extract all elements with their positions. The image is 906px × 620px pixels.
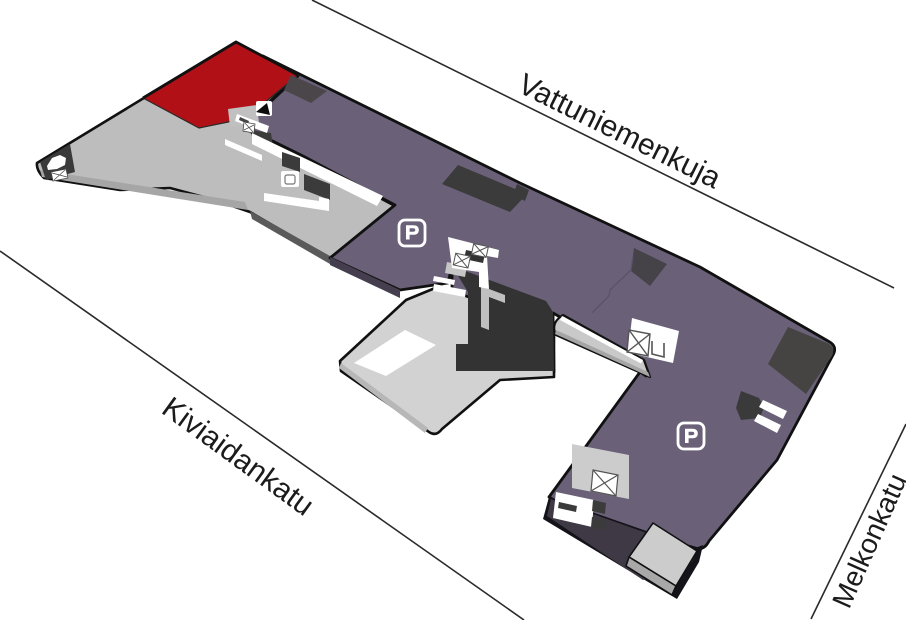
svg-text:Vattuniemenkuja: Vattuniemenkuja — [513, 68, 726, 196]
svg-text:Melkonkatu: Melkonkatu — [826, 469, 906, 612]
svg-text:Kiviaidankatu: Kiviaidankatu — [156, 391, 320, 523]
